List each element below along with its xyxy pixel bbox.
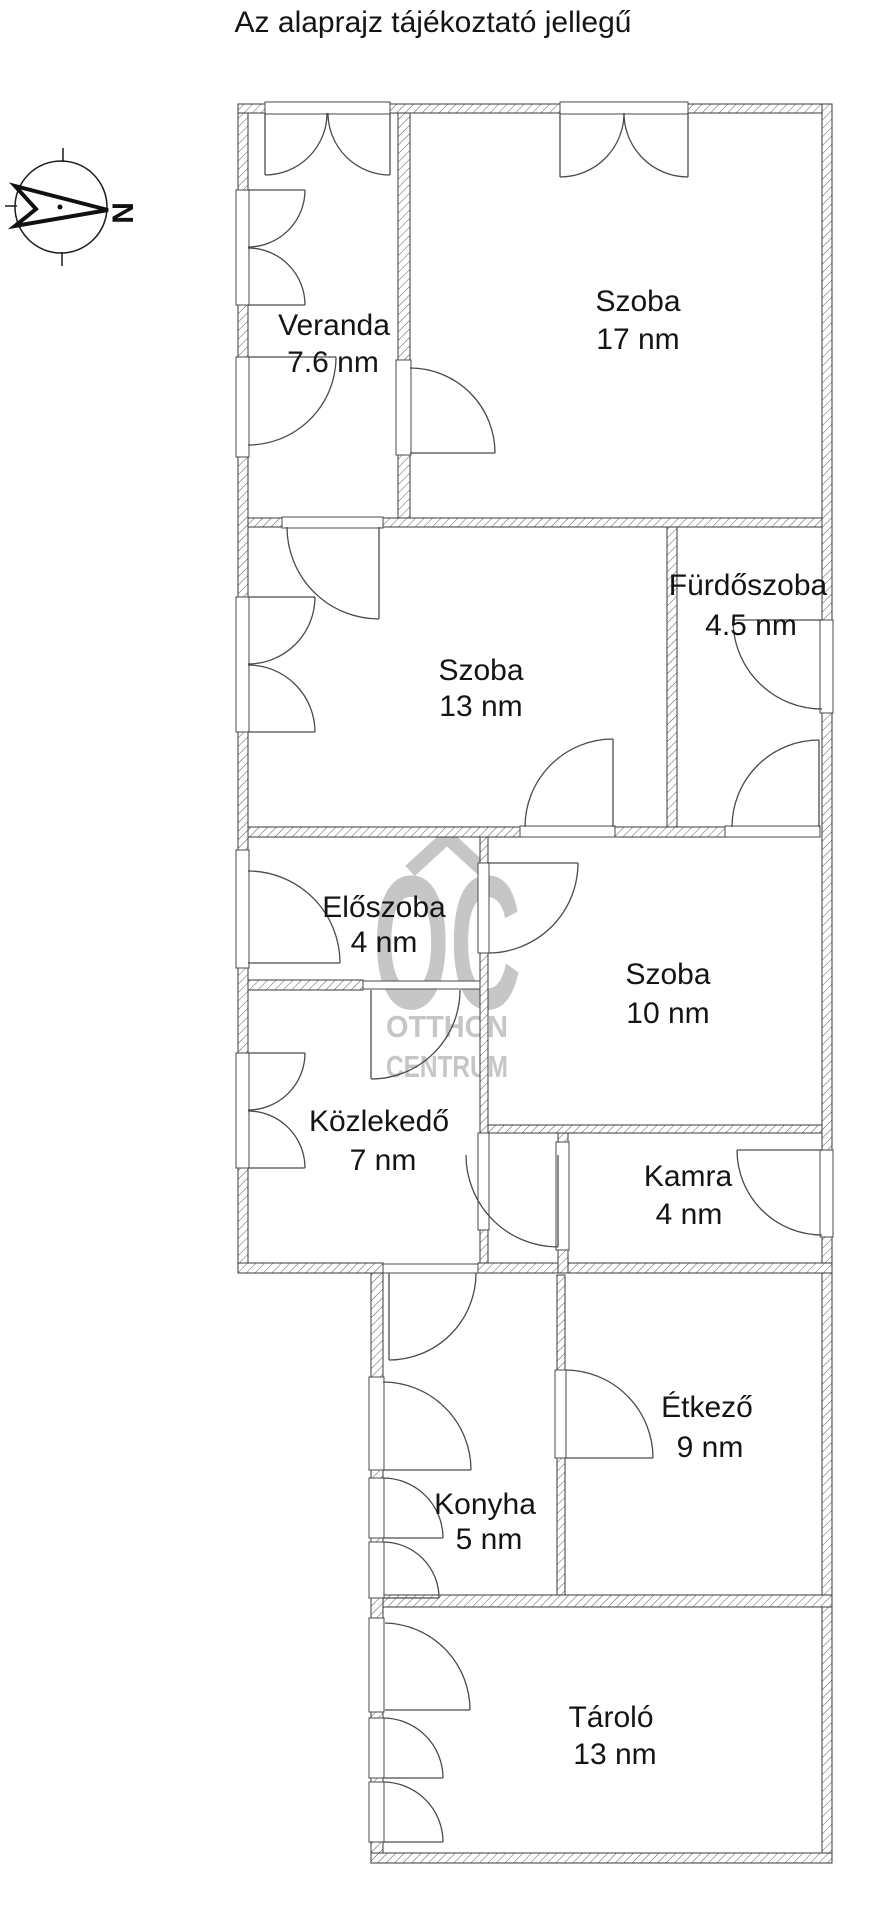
room-name: Tároló [568,1701,653,1734]
watermark-line1: OTTHON [386,1009,508,1044]
room-name: Szoba [438,654,523,687]
room-name: Étkező [661,1391,753,1424]
room-area: 7.6 nm [287,346,379,379]
room-area: 7 nm [350,1144,417,1177]
room-area: 4.5 nm [705,609,797,642]
page-title: Az alaprajz tájékoztató jellegű [235,6,632,39]
room-name: Szoba [595,285,680,318]
room-area: 10 nm [626,997,709,1030]
room-area: 13 nm [573,1738,656,1771]
room-name: Kamra [644,1160,733,1193]
room-area: 9 nm [677,1431,744,1464]
watermark: OC OTTHON CENTRUM [373,837,521,1084]
room-area: 13 nm [439,690,522,723]
north-label: N [106,202,139,224]
watermark-line2: CENTRUM [386,1049,508,1084]
room-name: Veranda [278,309,390,342]
room-name: Közlekedő [309,1105,449,1138]
room-area: 17 nm [596,323,679,356]
floor-plan-svg: Az alaprajz tájékoztató jellegű OC OTTHO… [0,0,895,1920]
room-area: 5 nm [456,1523,523,1556]
floor-plan-page: Az alaprajz tájékoztató jellegű OC OTTHO… [0,0,895,1920]
room-area: 4 nm [656,1198,723,1231]
room-name: Szoba [625,958,710,991]
room-name: Konyha [434,1488,536,1521]
compass-center-dot [58,205,63,210]
room-name: Előszoba [322,891,446,924]
room-name: Fürdőszoba [669,569,828,602]
room-area: 4 nm [351,926,418,959]
